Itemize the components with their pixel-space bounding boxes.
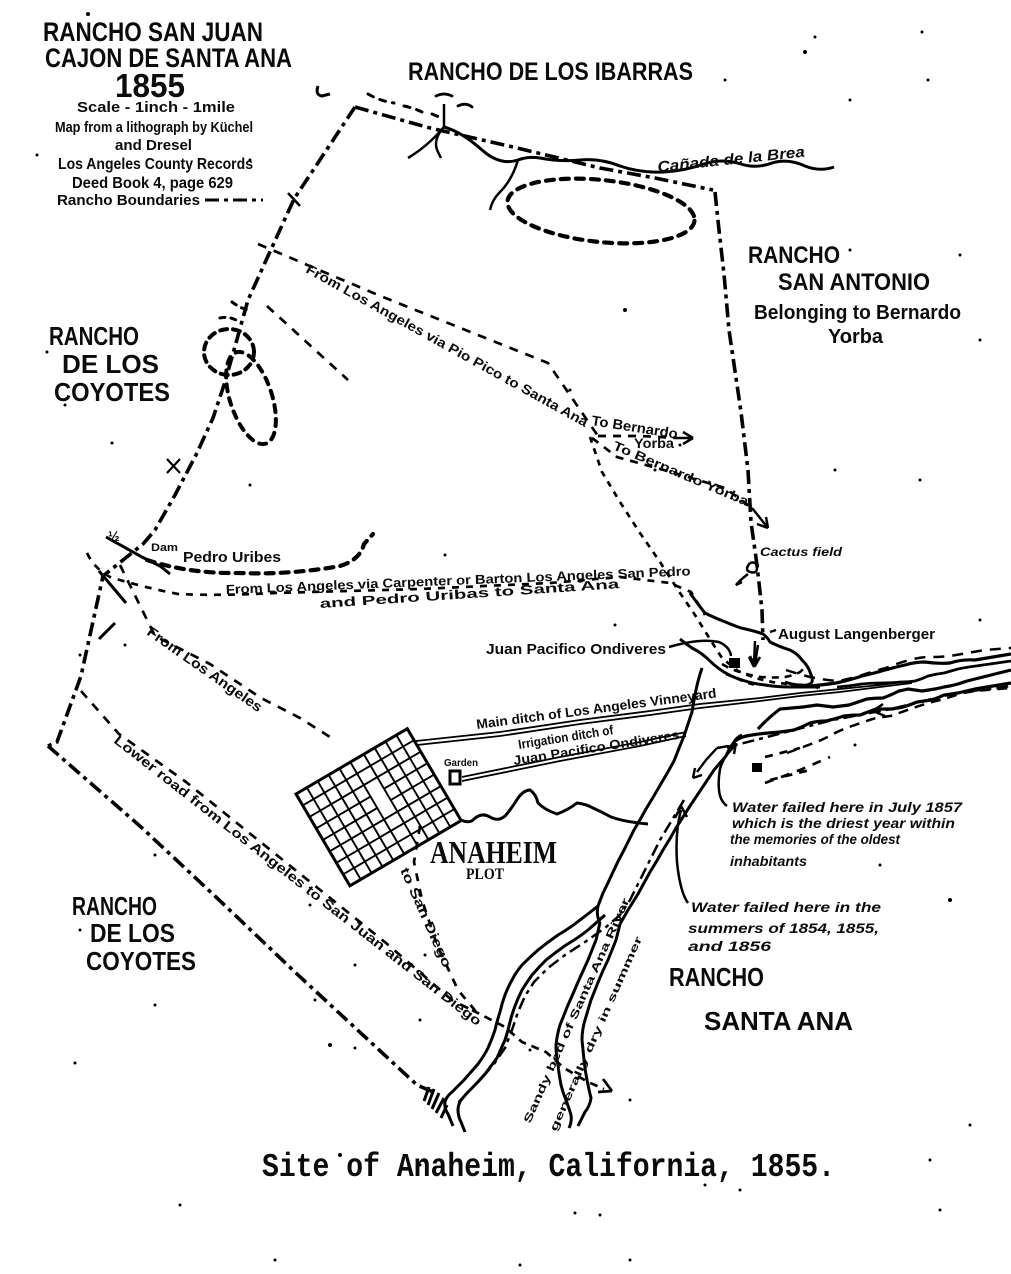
svg-text:RANCHO: RANCHO [72,891,157,921]
svg-text:DE LOS: DE LOS [90,918,175,948]
svg-text:Garden: Garden [444,758,478,769]
svg-text:Water failed here in July 1857: Water failed here in July 1857 [732,799,963,815]
svg-text:the memories of the oldest: the memories of the oldest [730,831,901,847]
svg-text:August Langenberger: August Langenberger [778,626,935,643]
svg-text:Water failed here in the: Water failed here in the [691,899,881,915]
svg-text:DE LOS: DE LOS [62,349,159,379]
svg-text:Cactus field: Cactus field [760,545,843,559]
svg-text:SANTA ANA: SANTA ANA [704,1006,853,1036]
svg-text:PLOT: PLOT [466,866,504,883]
svg-text:Juan Pacifico Ondiveres: Juan Pacifico Ondiveres [486,641,666,658]
svg-text:RANCHO: RANCHO [49,321,139,351]
svg-text:SAN ANTONIO: SAN ANTONIO [778,269,930,296]
svg-text:inhabitants: inhabitants [730,853,807,869]
svg-text:and Dresel: and Dresel [115,137,192,154]
svg-text:Site of Anaheim, California, 1: Site of Anaheim, California, 1855. [262,1149,835,1186]
svg-text:COYOTES: COYOTES [54,377,170,407]
svg-text:Scale - 1inch - 1mile: Scale - 1inch - 1mile [77,99,235,116]
svg-text:Map from a lithograph by Küche: Map from a lithograph by Küchel [55,119,253,136]
svg-text:RANCHO: RANCHO [669,962,764,992]
svg-text:Los Angeles County Records: Los Angeles County Records [58,156,253,173]
svg-text:Deed Book 4, page 629: Deed Book 4, page 629 [72,175,233,192]
svg-text:COYOTES: COYOTES [86,946,196,976]
svg-text:RANCHO DE LOS IBARRAS: RANCHO DE LOS IBARRAS [408,58,693,86]
svg-text:Dam: Dam [151,542,178,554]
svg-text:and 1856: and 1856 [688,938,771,954]
svg-text:RANCHO: RANCHO [748,242,840,269]
svg-text:ANAHEIM: ANAHEIM [430,834,557,870]
svg-text:Yorba: Yorba [828,326,884,348]
svg-text:which is the driest year withi: which is the driest year within [732,815,955,831]
svg-text:Belonging to Bernardo: Belonging to Bernardo [754,302,961,324]
svg-text:Pedro Uribes: Pedro Uribes [183,549,281,566]
svg-text:summers of 1854, 1855,: summers of 1854, 1855, [688,920,879,936]
svg-text:Rancho Boundaries: Rancho Boundaries [57,192,200,209]
svg-text:½: ½ [108,528,120,544]
